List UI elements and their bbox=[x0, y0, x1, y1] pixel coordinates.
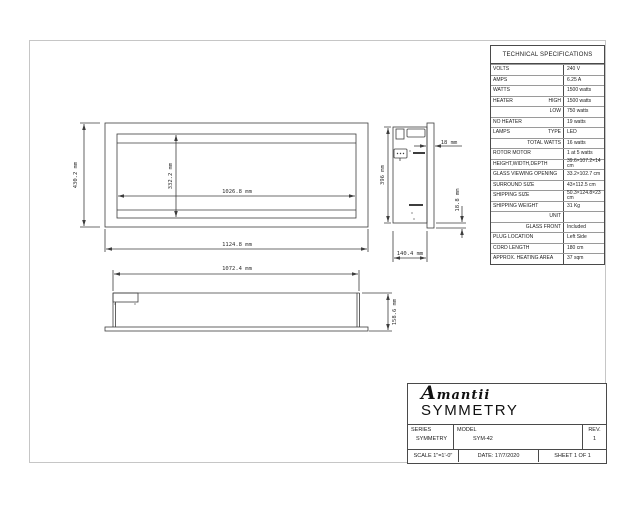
power-plug-symbol bbox=[394, 149, 411, 161]
spec-value: LED bbox=[563, 128, 604, 138]
spec-value: 43×112.5 cm bbox=[563, 181, 604, 191]
spec-value: Included bbox=[563, 223, 604, 233]
title-block-logo-section: Amantii SYMMETRY bbox=[408, 384, 606, 425]
spec-table: TECHNICAL SPECIFICATIONS VOLTS 240 V AMP… bbox=[490, 45, 605, 265]
side-top-box bbox=[396, 129, 404, 139]
ext-lines-front-height bbox=[80, 123, 100, 227]
dim-top-depth: 158.6 mm bbox=[392, 298, 398, 325]
top-dot-2 bbox=[134, 303, 135, 304]
spec-row-heating-area: APPROX. HEATING AREA 37 sqm bbox=[491, 253, 604, 264]
spec-value: 16 watts bbox=[563, 139, 604, 149]
spec-label: AMPS bbox=[493, 78, 507, 83]
sheet-cell: SHEET 1 OF 1 bbox=[539, 450, 606, 462]
ext-lines-top-width bbox=[113, 270, 359, 291]
drawing-sheet: { "spec_table": { "title": "TECHNICAL SP… bbox=[0, 0, 635, 508]
spec-row-shipping-size: SHIPPING SIZE 50.3×124.8×23 cm bbox=[491, 190, 604, 201]
spec-value: 1500 watts bbox=[563, 86, 604, 96]
spec-sublabel: HIGH bbox=[549, 99, 562, 104]
spec-label: APPROX. HEATING AREA bbox=[493, 256, 553, 261]
top-junction-box bbox=[113, 293, 138, 302]
title-block-info-row: SERIES SYMMETRY MODEL SYM-42 REV. 1 bbox=[408, 425, 606, 450]
model-label: MODEL bbox=[457, 427, 582, 433]
spec-value: 1 at 5 watts bbox=[563, 149, 604, 159]
dim-flange-depth: 18 mm bbox=[441, 140, 458, 146]
spec-row-watts: WATTS 1500 watts bbox=[491, 85, 604, 96]
top-view: 1072.4 mm 158.6 mm bbox=[105, 266, 398, 331]
series-label: SERIES bbox=[411, 427, 453, 433]
spec-row-glass-front: GLASS FRONT Included bbox=[491, 222, 604, 233]
ext-lines-top-depth bbox=[362, 293, 392, 331]
spec-row-lamps-type: LAMPSTYPE LED bbox=[491, 127, 604, 138]
series-cell: SERIES SYMMETRY bbox=[408, 425, 454, 449]
spec-label: SURROUND SIZE bbox=[493, 183, 534, 188]
spec-value: 31 Kg bbox=[563, 202, 604, 212]
spec-value: 33.2×102.7 cm bbox=[563, 170, 604, 180]
product-title: SYMMETRY bbox=[421, 403, 606, 419]
top-body-right-lines bbox=[357, 293, 360, 327]
spec-row-surround-size: SURROUND SIZE 43×112.5 cm bbox=[491, 180, 604, 191]
spec-label: ROTOR MOTOR bbox=[493, 151, 531, 156]
spec-row-glass-opening: GLASS VIEWING OPENING 33.2×102.7 cm bbox=[491, 169, 604, 180]
dim-side-depth: 140.4 mm bbox=[397, 251, 424, 257]
side-body-outline bbox=[393, 127, 427, 223]
side-dot-1 bbox=[411, 212, 412, 213]
model-value: SYM-42 bbox=[457, 436, 582, 442]
rev-cell: REV. 1 bbox=[583, 425, 606, 449]
model-cell: MODEL SYM-42 bbox=[454, 425, 583, 449]
spec-row-plug-location: PLUG LOCATION Left Side bbox=[491, 232, 604, 243]
spec-sublabel: UNIT bbox=[549, 214, 561, 219]
ext-lines-side-depth bbox=[393, 231, 427, 262]
spec-value: 50.3×124.8×23 cm bbox=[563, 191, 604, 201]
amantii-logo: Amantii bbox=[421, 386, 606, 403]
top-flange-bar bbox=[105, 327, 368, 331]
spec-label: CORD LENGTH bbox=[493, 246, 529, 251]
spec-value: 1500 watts bbox=[563, 97, 604, 107]
dim-top-width: 1072.4 mm bbox=[222, 266, 252, 272]
spec-value bbox=[563, 212, 604, 222]
title-block: Amantii SYMMETRY SERIES SYMMETRY MODEL S… bbox=[407, 383, 607, 464]
spec-label: SHIPPING SIZE bbox=[493, 193, 529, 198]
spec-value: 180 cm bbox=[563, 244, 604, 254]
spec-value: 750 watts bbox=[563, 107, 604, 117]
spec-value: 240 V bbox=[563, 65, 604, 75]
spec-label: GLASS VIEWING OPENING bbox=[493, 172, 557, 177]
front-surround-outline bbox=[105, 123, 368, 227]
side-view: 396 mm 18 mm 18.8 mm 140.4 mm bbox=[380, 123, 466, 262]
top-dot-1 bbox=[114, 303, 115, 304]
spec-sublabel: TOTAL WATTS bbox=[527, 141, 561, 146]
front-glass-outline bbox=[117, 134, 356, 218]
spec-table-title: TECHNICAL SPECIFICATIONS bbox=[491, 46, 604, 64]
ext-lines-front-width bbox=[105, 229, 368, 252]
spec-label: SHIPPING WEIGHT bbox=[493, 204, 538, 209]
spec-row-no-heater: NO HEATER 19 watts bbox=[491, 117, 604, 128]
scale-cell: SCALE 1"=1'-0" bbox=[408, 450, 459, 462]
ext-lines-flange-offset bbox=[436, 223, 466, 228]
title-block-bottom-row: SCALE 1"=1'-0" DATE: 17/7/2020 SHEET 1 O… bbox=[408, 450, 606, 462]
spec-row-hwd: HEIGHT,WIDTH,DEPTH 39.6×107.2×14 cm bbox=[491, 159, 604, 170]
spec-value: Left Side bbox=[563, 233, 604, 243]
spec-row-total-watts: TOTAL WATTS 16 watts bbox=[491, 138, 604, 149]
spec-value: 39.6×107.2×14 cm bbox=[563, 160, 604, 170]
spec-value: 37 sqm bbox=[563, 254, 604, 264]
date-cell: DATE: 17/7/2020 bbox=[459, 450, 539, 462]
spec-value: 19 watts bbox=[563, 118, 604, 128]
spec-row-volts: VOLTS 240 V bbox=[491, 64, 604, 75]
spec-label: WATTS bbox=[493, 88, 510, 93]
spec-label: LAMPS bbox=[493, 130, 510, 135]
spec-sublabel: TYPE bbox=[548, 130, 561, 135]
front-view: 430.2 mm 332.2 mm 1026.8 mm 1124.8 mm bbox=[73, 123, 368, 252]
spec-row-amps: AMPS 6.25 A bbox=[491, 75, 604, 86]
spec-value: 6.25 A bbox=[563, 76, 604, 86]
spec-row-heater-low: LOW 750 watts bbox=[491, 106, 604, 117]
spec-label: HEIGHT,WIDTH,DEPTH bbox=[493, 162, 547, 167]
side-flange-outline bbox=[427, 123, 434, 228]
spec-sublabel: GLASS FRONT bbox=[526, 225, 561, 230]
spec-row-cord-length: CORD LENGTH 180 cm bbox=[491, 243, 604, 254]
dim-flange-offset: 18.8 mm bbox=[455, 188, 461, 212]
dim-glass-height: 332.2 mm bbox=[168, 162, 174, 189]
spec-label: VOLTS bbox=[493, 67, 509, 72]
side-top-slot bbox=[407, 129, 425, 137]
spec-label: NO HEATER bbox=[493, 120, 522, 125]
dim-glass-width: 1026.8 mm bbox=[222, 189, 252, 195]
dim-front-width: 1124.8 mm bbox=[222, 242, 252, 248]
rev-label: REV. bbox=[583, 427, 606, 433]
spec-sublabel: LOW bbox=[550, 109, 561, 114]
dim-side-height: 396 mm bbox=[380, 164, 386, 185]
spec-row-rotor-motor: ROTOR MOTOR 1 at 5 watts bbox=[491, 148, 604, 159]
rev-value: 1 bbox=[583, 436, 606, 442]
spec-row-shipping-weight: SHIPPING WEIGHT 31 Kg bbox=[491, 201, 604, 212]
spec-row-heater-high: HEATERHIGH 1500 watts bbox=[491, 96, 604, 107]
side-dot-2 bbox=[413, 218, 414, 219]
spec-row-unit: UNIT bbox=[491, 211, 604, 222]
series-value: SYMMETRY bbox=[411, 436, 453, 442]
spec-label: PLUG LOCATION bbox=[493, 235, 533, 240]
spec-label: HEATER bbox=[493, 99, 513, 104]
dim-front-height: 430.2 mm bbox=[73, 161, 79, 188]
